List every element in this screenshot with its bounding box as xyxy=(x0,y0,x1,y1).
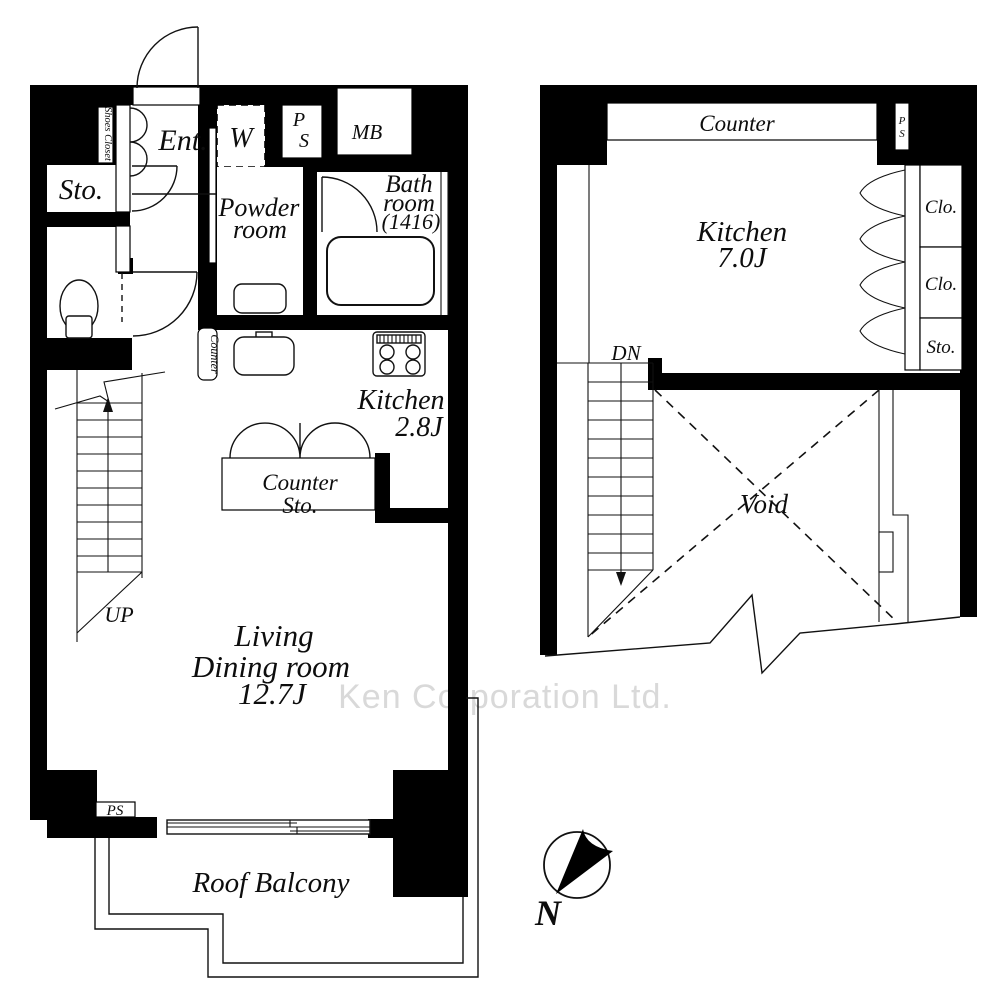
powder-room-label-2: room xyxy=(233,215,287,244)
floor-break-line xyxy=(545,595,960,673)
roof-balcony-label: Roof Balcony xyxy=(191,867,349,899)
living-label-3: 12.7J xyxy=(238,676,307,711)
closet-track xyxy=(116,105,130,212)
void-dashed-line-2 xyxy=(588,390,879,637)
compass-north-label: N xyxy=(534,893,563,933)
toilet-tank-icon xyxy=(66,316,92,338)
entrance-door-swing xyxy=(137,27,198,88)
counter-storage-label-1: Counter xyxy=(262,470,338,495)
sliding-window xyxy=(167,820,370,834)
closet-folding-doors xyxy=(860,170,905,354)
watermark-text: Ken Corporation Ltd. xyxy=(338,678,672,716)
living-label-1: Living xyxy=(233,618,313,653)
pocket-door-track xyxy=(116,226,130,272)
closet-label-2: Clo. xyxy=(925,274,957,295)
kitchen-counter-label: Counter xyxy=(208,334,222,374)
living-door-swing xyxy=(133,272,197,336)
void-rail-notch xyxy=(879,532,893,572)
entrance-label: Ent. xyxy=(157,124,207,157)
floor-plan-drawing: Ken Corporation Ltd. xyxy=(0,0,1000,1000)
pipe-space-2f-label-p: P xyxy=(898,115,906,127)
counter-storage-doors xyxy=(230,423,370,458)
closet-track-strip xyxy=(905,165,920,370)
stairs-up-label: UP xyxy=(104,602,133,627)
bathtub-icon xyxy=(327,237,434,305)
counter-storage-label-2: Sto. xyxy=(282,493,317,518)
pipe-space-label-s: S xyxy=(299,130,309,152)
storage-2f-label: Sto. xyxy=(926,337,955,358)
floor1-plan: Shoes Closet Ent. Sto. W P S MB Powder r… xyxy=(30,27,478,977)
stove-icon xyxy=(373,332,425,376)
floor-plan-page: Ken Corporation Ltd. xyxy=(0,0,1000,1000)
kitchen2-label-2: 7.0J xyxy=(717,242,767,274)
compass: N xyxy=(534,829,613,933)
hall-door-swing xyxy=(132,166,177,211)
kitchen-sink-icon xyxy=(234,337,294,375)
shoes-closet-label: Shoes Closet xyxy=(102,107,113,162)
powder-sink-icon xyxy=(234,284,286,313)
storage-label: Sto. xyxy=(59,174,103,206)
meter-box-label: MB xyxy=(351,120,382,144)
pipe-space-2f-label-s: S xyxy=(899,128,905,140)
bath-room-label-3: (1416) xyxy=(382,209,441,234)
pipe-space-label-p: P xyxy=(292,109,305,131)
void-rail-line-2 xyxy=(893,390,908,623)
washer-label: W xyxy=(229,123,255,154)
void-label: Void xyxy=(740,489,789,519)
floor2-plan: Counter P S Kitchen 7.0J Clo. Clo. Sto. … xyxy=(540,85,977,673)
kitchen1-label-2: 2.8J xyxy=(395,412,444,443)
counter-label-2f: Counter xyxy=(699,111,775,136)
stairs-down-arrow xyxy=(616,572,626,586)
stairs-second-floor xyxy=(588,363,653,637)
powder-pocket-door xyxy=(209,128,216,263)
stairs-down-label: DN xyxy=(610,341,641,365)
pipe-space-bottom-label: PS xyxy=(106,803,124,819)
entrance-threshold xyxy=(133,87,200,105)
closet-label-1: Clo. xyxy=(925,197,957,218)
